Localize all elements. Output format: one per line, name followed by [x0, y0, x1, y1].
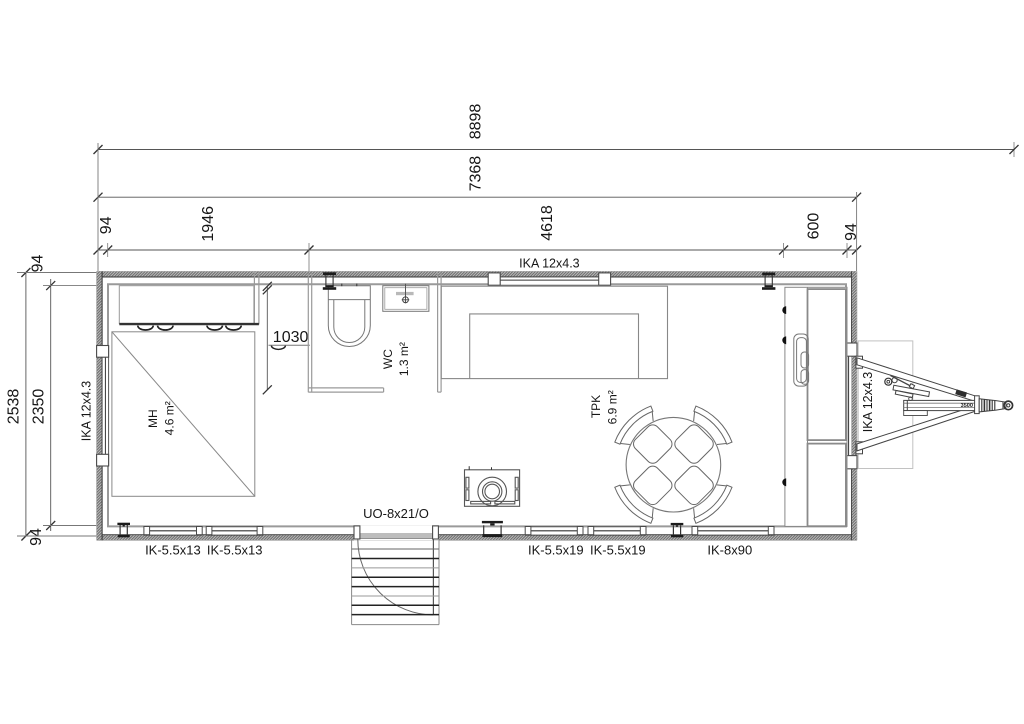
svg-text:MH: MH: [146, 409, 160, 428]
svg-text:IK-5.5x19: IK-5.5x19: [528, 542, 584, 557]
svg-text:1.3 m²: 1.3 m²: [397, 342, 411, 376]
svg-text:TPK: TPK: [589, 395, 603, 418]
svg-text:IKA 12x4.3: IKA 12x4.3: [861, 372, 875, 433]
svg-text:IK-8x90: IK-8x90: [707, 542, 752, 557]
svg-text:UO-8x21/O: UO-8x21/O: [363, 506, 429, 521]
svg-text:8898: 8898: [468, 104, 485, 140]
svg-text:IK-5.5x13: IK-5.5x13: [145, 542, 201, 557]
svg-text:2350: 2350: [30, 389, 47, 425]
svg-text:4618: 4618: [539, 205, 556, 241]
svg-text:7368: 7368: [468, 156, 485, 192]
svg-text:1030: 1030: [273, 329, 309, 346]
svg-text:IKA 12x4.3: IKA 12x4.3: [519, 257, 580, 271]
svg-text:600: 600: [806, 213, 823, 240]
svg-text:IKA 12x4.3: IKA 12x4.3: [80, 381, 94, 442]
svg-text:WC: WC: [381, 349, 395, 369]
svg-text:94: 94: [28, 528, 45, 546]
svg-text:IK-5.5x19: IK-5.5x19: [590, 542, 646, 557]
svg-text:1946: 1946: [200, 206, 217, 242]
svg-text:94: 94: [98, 216, 115, 234]
svg-text:94: 94: [843, 223, 860, 241]
svg-text:3500: 3500: [961, 403, 973, 409]
svg-text:2538: 2538: [6, 389, 23, 425]
svg-text:IK-5.5x13: IK-5.5x13: [207, 542, 263, 557]
svg-text:6.9 m²: 6.9 m²: [606, 390, 620, 424]
svg-text:4.6 m²: 4.6 m²: [163, 401, 177, 435]
svg-text:94: 94: [29, 255, 46, 273]
